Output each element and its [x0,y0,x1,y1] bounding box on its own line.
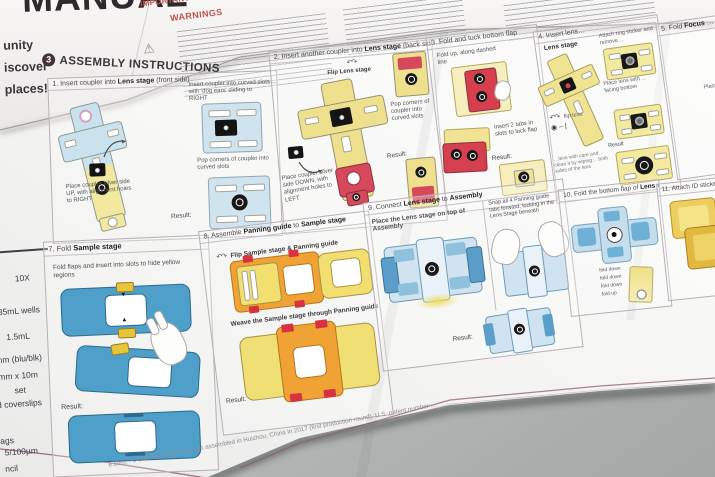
lens-sticker-diagram-2 [613,103,665,139]
step-1-result-label: Result: [171,212,192,221]
kit-item: 35mL wells [0,304,40,322]
step-8-panel: 8. Assemble Panning guide to Sample stag… [198,210,394,435]
arrow-down-icon: ▼ [120,292,126,298]
kit-item: 5/100µm [0,445,38,463]
warnings-heading: WARNINGS [170,7,224,23]
kit-item: ncil [0,463,18,477]
step-2-note-pop: Pop corners of coupler into curved slots [390,98,436,123]
coupler-popped-diagram [208,175,272,229]
arrow-up-icon: ▲ [121,317,127,323]
flip-lens-label: flip lens [563,112,582,121]
important-kicker: IMPORTANT S [140,0,198,8]
step-8-result-diagram [238,316,380,408]
id-sticker-diagram-2 [684,223,715,270]
coupler-in-slots-diagram [201,102,263,154]
lens-stage-fold-diagram [569,203,658,265]
step-9-panel: 9. Connect Lens stage to Assembly Place … [362,178,583,371]
step-1-note-insert: Insert coupler into curved slots with 'd… [188,79,271,103]
warning-triangle-icon: ⚠ [142,41,155,55]
kit-item: 10X [0,273,30,290]
step-1-note-pop: Pop corners of coupler into curved slots [197,155,277,172]
flip-arrows-icon: ↶↷ [346,58,356,67]
kit-item: 1.5mL [0,331,30,348]
step-9-result-diagram [481,303,557,357]
fold-labels: fold down fold down fold down fold up [599,265,624,299]
coupler-mini-diagram [392,51,430,98]
step-7-note: Fold flaps and insert into slots to hide… [53,258,196,280]
step-3-result-label: Result: [491,153,512,162]
step-10-panel: 10. Fold the bottom flap of Lens stage f… [558,179,673,317]
step-7-panel: 7. Fold Sample stage Fold flaps and inse… [43,234,219,477]
assembly-diagram [378,230,485,308]
fold-label: fold up [601,288,623,298]
kit-list-divider [0,248,48,254]
arrow-curve [100,134,131,159]
step-9-result-label: Result: [452,334,473,343]
step-3-note-tabs: Insert 2 tabs in slots to lock flap [494,119,543,139]
kit-item: mm (blu/blk) [0,352,42,370]
step-8-result-label: Result: [226,396,247,405]
step-1-panel: 1. Insert coupler into Lens stage (front… [47,70,283,244]
flip-arrows-icon: ↶↷ [549,114,560,122]
coupler-chip [89,163,105,177]
fold-flap-diagram-2 [442,127,492,173]
step-4-note-care: …lens with care and… clean it by wiping…… [553,149,613,175]
step-7-result-label: Result: [61,403,83,411]
step-5-note: Place… [703,81,715,92]
yellow-flap-fragment [628,266,653,303]
photo-of-foldscope-manual: MANUAL unity iscover places! IMPORTANT S… [0,0,715,477]
fold-flap-diagram [450,61,512,117]
kit-item: nd coverslips [0,397,42,415]
